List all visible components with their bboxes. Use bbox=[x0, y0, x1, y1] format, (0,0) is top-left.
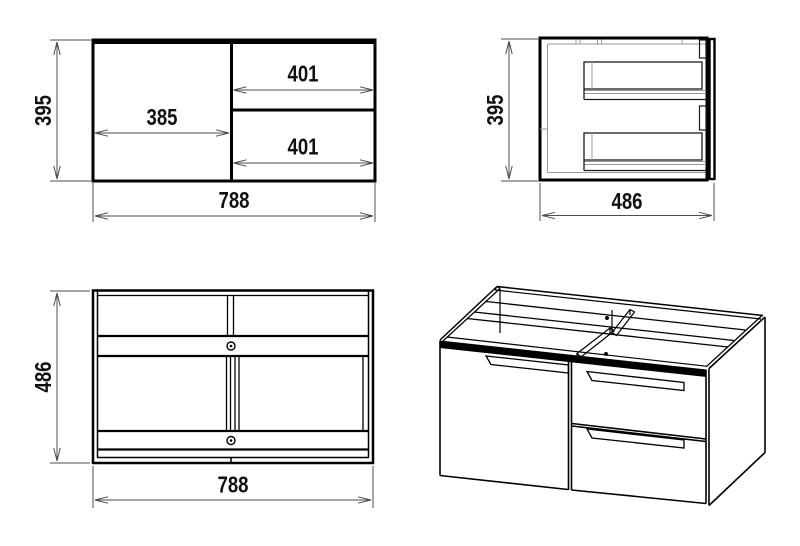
front-upper-drawer-dimension bbox=[234, 87, 374, 93]
iso-right-side-panel bbox=[707, 315, 766, 506]
screw-icon bbox=[604, 352, 608, 356]
screw-center-dot bbox=[230, 345, 233, 348]
side-upper-bracket bbox=[700, 40, 707, 58]
top-view: 486 788 bbox=[30, 290, 374, 509]
drawing-page: 395 385 401 401 788 bbox=[0, 0, 800, 546]
iso-drawer-bottom-edge bbox=[572, 490, 707, 504]
front-width-value: 788 bbox=[219, 187, 250, 213]
side-height-value: 395 bbox=[482, 94, 508, 125]
screw-icon bbox=[605, 316, 609, 320]
front-view: 395 385 401 401 788 bbox=[30, 40, 375, 222]
top-width-value: 788 bbox=[218, 472, 249, 498]
side-upper-drawer bbox=[584, 40, 706, 100]
front-door-width-dimension bbox=[95, 130, 229, 136]
top-depth-value: 486 bbox=[30, 362, 56, 393]
iso-back-panel bbox=[495, 287, 763, 320]
technical-drawing: 395 385 401 401 788 bbox=[0, 0, 800, 546]
iso-front-rail bbox=[440, 341, 706, 377]
iso-drawer-split bbox=[572, 424, 706, 440]
front-upper-drawer-value: 401 bbox=[288, 61, 319, 87]
side-front-panel-edge bbox=[710, 39, 715, 179]
side-lower-bracket bbox=[700, 106, 707, 130]
front-lower-drawer-value: 401 bbox=[288, 134, 319, 160]
screw-center-dot bbox=[230, 439, 233, 442]
side-lower-drawer bbox=[584, 106, 706, 171]
isometric-view bbox=[440, 287, 765, 506]
side-outline bbox=[540, 38, 715, 180]
iso-upper-drawer-handle-groove bbox=[587, 372, 684, 391]
front-lower-drawer-dimension bbox=[234, 160, 374, 166]
top-depth-dimension bbox=[50, 291, 90, 463]
iso-back-divider bbox=[612, 310, 635, 336]
front-height-dimension bbox=[50, 40, 91, 181]
front-door-width-value: 385 bbox=[147, 104, 178, 130]
side-view: 395 486 bbox=[482, 38, 715, 221]
iso-right-fin-top-edge bbox=[709, 317, 765, 369]
front-outline bbox=[93, 40, 375, 181]
side-inner-lines bbox=[540, 40, 706, 173]
iso-lower-drawer-handle-groove bbox=[587, 429, 684, 448]
iso-right-bottom-edge bbox=[709, 453, 765, 506]
iso-door-bottom-edge bbox=[440, 476, 568, 490]
front-height-value: 395 bbox=[30, 95, 56, 126]
side-depth-value: 486 bbox=[612, 188, 643, 214]
